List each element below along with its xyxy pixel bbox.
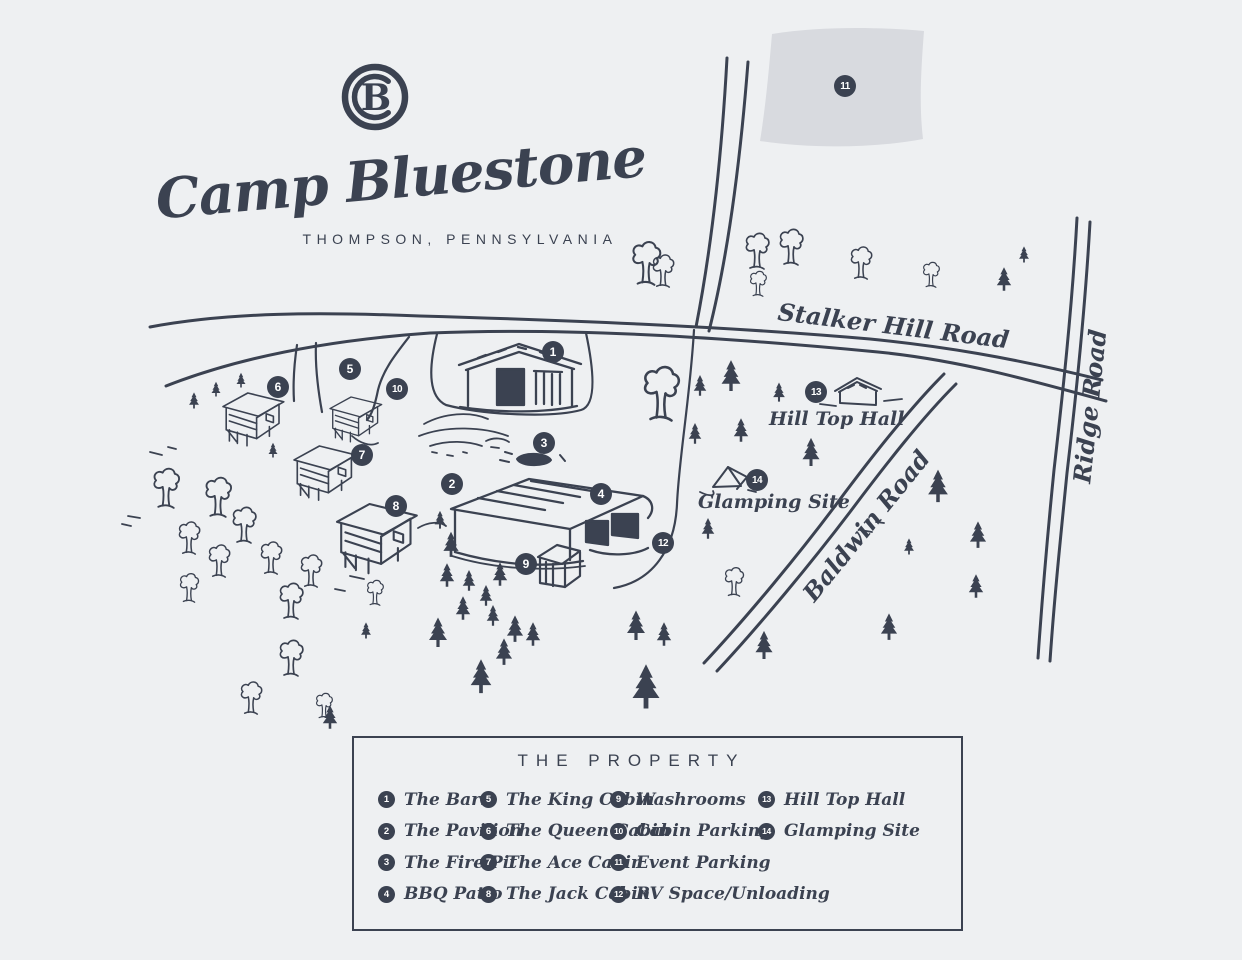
map-marker-14: 14 xyxy=(746,469,768,491)
legend-item-label: Cabin Parking xyxy=(636,821,772,841)
legend-item-number: 13 xyxy=(758,791,775,808)
legend-item: 12RV Space/Unloading xyxy=(610,879,830,911)
logo-monogram: B xyxy=(335,57,415,137)
legend-item-number: 6 xyxy=(480,823,497,840)
legend-item-number: 14 xyxy=(758,823,775,840)
legend-item-label: Hill Top Hall xyxy=(784,790,905,810)
legend-item: 13Hill Top Hall xyxy=(758,784,920,816)
legend-item-number: 7 xyxy=(480,854,497,871)
map-marker-13: 13 xyxy=(805,381,827,403)
map-marker-9: 9 xyxy=(515,553,537,575)
legend-item: 11Event Parking xyxy=(610,847,830,879)
map-marker-8: 8 xyxy=(385,495,407,517)
event-parking-driveway xyxy=(696,58,727,327)
glamping-tent xyxy=(713,467,747,489)
map-marker-6: 6 xyxy=(267,376,289,398)
legend-item-label: Glamping Site xyxy=(784,821,920,841)
legend-item-label: Event Parking xyxy=(636,853,771,873)
legend-item-number: 10 xyxy=(610,823,627,840)
camp-subtitle: THOMPSON, PENNSYLVANIA xyxy=(290,231,630,247)
map-marker-2: 2 xyxy=(441,473,463,495)
legend-item-number: 4 xyxy=(378,886,395,903)
site-label-hill-top-hall: Hill Top Hall xyxy=(769,408,889,430)
map-marker-10: 10 xyxy=(386,378,408,400)
washrooms-building xyxy=(538,545,580,587)
pavilion-building xyxy=(451,479,652,565)
legend-item-label: Washrooms xyxy=(636,790,746,810)
map-marker-12: 12 xyxy=(652,532,674,554)
jack-cabin-building xyxy=(337,504,417,573)
legend-item-number: 11 xyxy=(610,854,627,871)
legend-item-number: 12 xyxy=(610,886,627,903)
hill-top-hall-building xyxy=(835,378,881,405)
legend-title: THE PROPERTY xyxy=(328,751,935,771)
legend-item-number: 2 xyxy=(378,823,395,840)
map-marker-11: 11 xyxy=(834,75,856,97)
ace-cabin-building xyxy=(294,446,356,500)
legend-column-4: 13Hill Top Hall14Glamping Site xyxy=(758,784,920,847)
legend-item-number: 3 xyxy=(378,854,395,871)
legend-item-number: 8 xyxy=(480,886,497,903)
legend-item-number: 5 xyxy=(480,791,497,808)
legend-item-number: 1 xyxy=(378,791,395,808)
site-label-glamping-site: Glamping Site xyxy=(698,491,818,513)
monogram-letter: B xyxy=(361,77,391,119)
map-marker-7: 7 xyxy=(351,444,373,466)
map-marker-5: 5 xyxy=(339,358,361,380)
legend-box: THE PROPERTY 1The Barn2The Pavilion3The … xyxy=(352,736,963,931)
map-marker-1: 1 xyxy=(542,341,564,363)
map-marker-3: 3 xyxy=(533,432,555,454)
map-marker-4: 4 xyxy=(590,483,612,505)
legend-item-label: RV Space/Unloading xyxy=(636,884,830,904)
camp-bluestone-map-page: B Camp Bluestone THOMPSON, PENNSYLVANIA … xyxy=(0,0,1242,960)
fire-pit xyxy=(500,452,565,465)
queen-cabin-building xyxy=(223,393,284,446)
legend-item: 14Glamping Site xyxy=(758,816,920,848)
legend-item-number: 9 xyxy=(610,791,627,808)
